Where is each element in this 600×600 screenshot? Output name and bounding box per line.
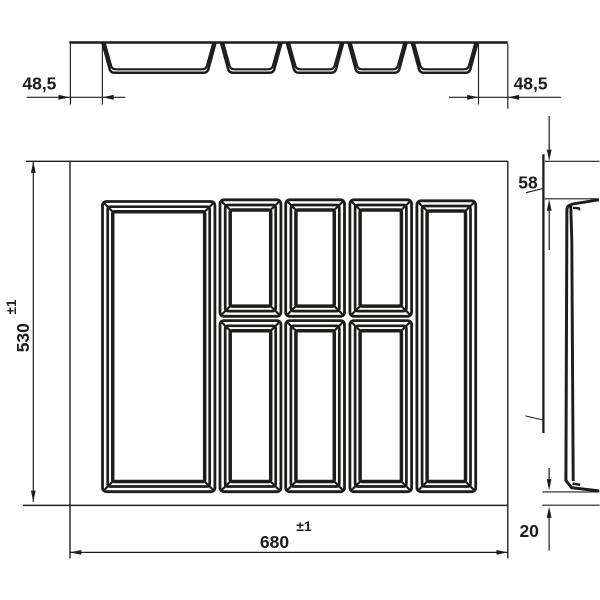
svg-text:58: 58 — [518, 173, 538, 193]
svg-text:20: 20 — [519, 521, 539, 541]
svg-text:±1: ±1 — [4, 299, 19, 314]
svg-text:530: 530 — [13, 323, 33, 352]
svg-text:680: 680 — [260, 532, 289, 552]
svg-text:±1: ±1 — [296, 518, 312, 534]
svg-text:48,5: 48,5 — [22, 73, 56, 93]
svg-text:48,5: 48,5 — [514, 73, 548, 93]
